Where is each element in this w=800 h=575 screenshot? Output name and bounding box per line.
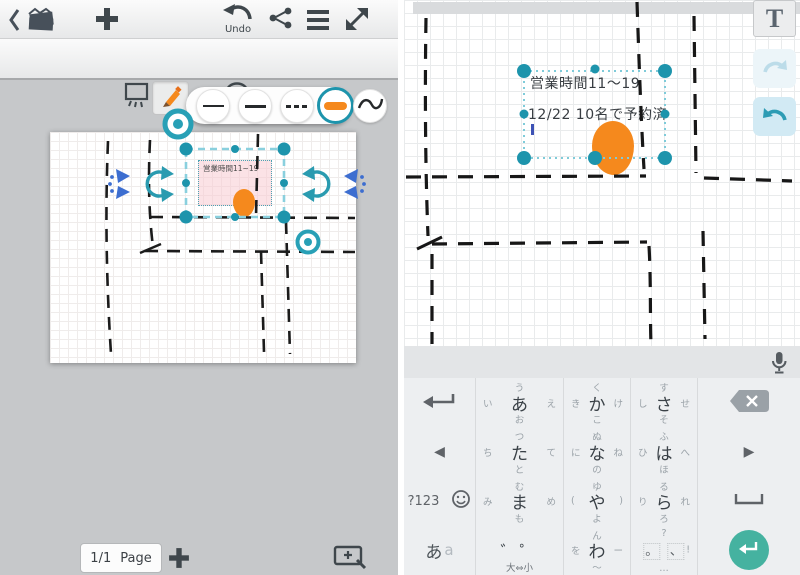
back-chevron-icon [8, 7, 21, 37]
undo-arrow-icon [761, 104, 789, 130]
key-symbols[interactable]: ?123 [408, 494, 440, 509]
key-ta[interactable]: ち つ た て と [476, 427, 564, 476]
key-a[interactable]: い う あ え お [476, 378, 564, 427]
pencil-icon [158, 83, 184, 113]
comma-char: 、 [668, 543, 685, 560]
plus-icon [96, 8, 118, 30]
smiley-icon [451, 489, 471, 513]
key-ha[interactable]: ひ ふ は へ ほ [631, 427, 698, 476]
add-page-button-bottom[interactable] [168, 547, 190, 569]
key-backspace[interactable] [698, 378, 800, 427]
key-wa[interactable]: を ん わ ー 〜 [564, 526, 631, 575]
undo-arrow-icon [222, 3, 254, 25]
key-emoji[interactable] [451, 489, 471, 513]
note-text-line1[interactable]: 営業時間11〜19 [530, 73, 640, 93]
share-icon [268, 7, 294, 33]
key-ma[interactable]: み む ま め も [476, 477, 564, 526]
zoomed-note-panel: 営業時間11〜19 12/22 10名で予約済 T [404, 0, 800, 575]
key-cursor-right[interactable]: ▶ [698, 427, 800, 476]
text-tool-label: T [766, 4, 783, 34]
zoomed-canvas[interactable] [404, 0, 800, 346]
wave-line-icon [356, 94, 384, 118]
triangle-left-icon: ◀ [434, 444, 445, 460]
key-sa[interactable]: し す さ せ そ [631, 378, 698, 427]
suggestion-bar [404, 346, 800, 378]
pen-wave-option[interactable] [353, 89, 387, 123]
tools-toolbar: T [0, 39, 398, 80]
page-label: Page [120, 551, 151, 566]
medium-line-icon [245, 105, 266, 108]
note-editor-panel: Undo [0, 0, 398, 575]
magnifier-add-icon [332, 543, 370, 575]
page-indicator[interactable]: 1/1 Page [80, 543, 162, 573]
pen-tool[interactable] [152, 81, 189, 115]
triangle-right-icon: ▶ [744, 444, 755, 460]
redo-button[interactable] [753, 49, 796, 88]
pen-medium-option[interactable] [238, 89, 272, 123]
fullscreen-icon [344, 6, 370, 36]
highlighter-line-icon [324, 102, 347, 110]
back-button[interactable] [8, 6, 59, 38]
space-icon [732, 490, 766, 512]
text-tool-button[interactable]: T [753, 0, 796, 37]
menu-icon [307, 10, 329, 14]
enter-arrow-icon [738, 539, 760, 561]
key-na[interactable]: に ぬ な ね の [564, 427, 631, 476]
fullscreen-button[interactable] [344, 6, 370, 36]
selection-mode-icon [122, 81, 152, 113]
key-input-mode[interactable]: あ a [404, 526, 476, 575]
key-enter[interactable] [698, 526, 800, 575]
key-punctuation[interactable]: ? 。 、 ! … [631, 526, 698, 575]
undo-button[interactable] [753, 97, 796, 136]
thin-line-icon [203, 105, 224, 107]
key-revert[interactable] [404, 378, 476, 427]
menu-button[interactable] [307, 10, 329, 30]
add-page-button[interactable] [96, 8, 118, 30]
notes-stack-icon [23, 6, 59, 38]
key-ya[interactable]: ( ゆ や ) よ [564, 477, 631, 526]
japanese-flick-keyboard: い う あ え お き く か け こ し す さ せ そ [404, 378, 800, 575]
pen-dotted-option[interactable] [280, 89, 314, 123]
text-cursor [531, 124, 534, 135]
top-edge-bar [413, 2, 800, 14]
key-dakuten[interactable]: ゛゜ 大⇔小 [476, 526, 564, 575]
plus-icon [169, 548, 189, 568]
pen-thin-option[interactable] [196, 89, 230, 123]
undo-label: Undo [225, 24, 251, 35]
key-space[interactable] [698, 477, 800, 526]
dotted-line-icon [286, 105, 308, 108]
key-ra[interactable]: り る ら れ ろ [631, 477, 698, 526]
microphone-icon[interactable] [769, 350, 789, 379]
top-toolbar: Undo [0, 0, 398, 39]
orange-ink-blob [592, 121, 634, 175]
key-ka[interactable]: き く か け こ [564, 378, 631, 427]
pen-highlighter-option-selected[interactable] [317, 87, 354, 124]
key-symbols-emoji: ?123 [404, 477, 476, 526]
share-button[interactable] [268, 7, 294, 33]
enter-circle [729, 530, 769, 570]
backspace-icon [726, 387, 772, 419]
note-text-line2[interactable]: 12/22 10名で予約済 [528, 104, 667, 124]
page-number: 1/1 [90, 551, 111, 566]
revert-arrow-icon [422, 391, 458, 415]
redo-arrow-icon [761, 56, 789, 82]
zoom-button[interactable] [332, 543, 370, 575]
period-char: 。 [643, 543, 660, 560]
undo-button[interactable]: Undo [222, 3, 254, 35]
key-cursor-left[interactable]: ◀ [404, 427, 476, 476]
orange-ink-blob [233, 189, 255, 217]
selection-mode-tool[interactable] [122, 81, 152, 113]
